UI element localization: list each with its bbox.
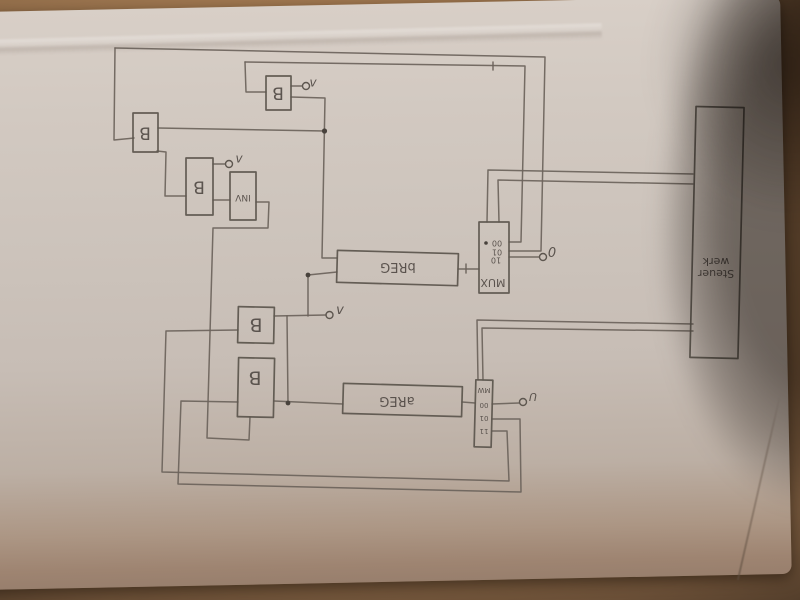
b2-label: B [139, 123, 151, 142]
wire-top-outer [115, 48, 545, 251]
junction-mux-port [484, 241, 488, 245]
terminal-b1 [303, 83, 310, 90]
wire-amux-to-steuerwerk-2 [482, 328, 693, 380]
wire-b5-to-areg [274, 401, 343, 404]
steuerwerk-label-line1: Steuer [698, 267, 734, 279]
amux-row-mw: MW [478, 385, 491, 393]
pencil-drawing [0, 0, 800, 600]
b4-terminal-label: v [336, 304, 344, 318]
wire-b4-branch-down [287, 316, 288, 403]
b3-terminal-label: v [235, 152, 242, 165]
amux-row-11: 11 [480, 426, 489, 434]
wire-b2-out [158, 128, 325, 131]
wire-loop-inner [162, 330, 509, 481]
b1-terminal-label: v [309, 76, 316, 89]
amux-select-label: U [529, 390, 537, 402]
wire-b1-to-breg [291, 97, 337, 258]
steuerwerk-box [690, 106, 744, 358]
terminal-b4 [326, 312, 333, 319]
mux-select-label: 0 [548, 247, 556, 261]
mux-port-10: 10 [491, 255, 501, 264]
b1-label: B [272, 83, 284, 102]
areg-label: aREG [379, 393, 414, 407]
wire-mux-to-steuerwerk-1 [487, 170, 693, 222]
amux-row-00: 00 [480, 400, 489, 408]
mux-label: MUX [480, 276, 505, 288]
wire-b4-out [274, 315, 326, 316]
b5-label: B [248, 367, 261, 388]
breg-label: bREG [380, 259, 416, 273]
steuerwerk-label-line2: werk [698, 255, 734, 267]
wire-mux-to-steuerwerk-2 [498, 180, 693, 222]
inv-label: INV [235, 191, 251, 201]
photo-circuit-sketch: B B B B B INV bREG aREG MUX 00 01 10 MW … [0, 0, 800, 600]
terminal-b3 [226, 161, 233, 168]
wire-loop-outer [178, 401, 521, 492]
terminal-amux [520, 399, 527, 406]
amux-row-01: 01 [480, 413, 489, 421]
wire-rail-to-b2 [114, 48, 134, 140]
wire-amux-select [492, 403, 519, 404]
b4-label: B [249, 314, 262, 335]
junction-b1-b2 [322, 128, 327, 133]
wire-rail-to-b1 [245, 62, 266, 92]
steuerwerk-label: Steuer werk [698, 255, 734, 279]
junction-b5-areg [286, 401, 291, 406]
terminal-mux [540, 254, 547, 261]
mux-port-00: 00 [492, 238, 502, 247]
wire-areg-to-amux [462, 402, 475, 403]
blocks [133, 76, 744, 447]
wire-top-inner [245, 62, 525, 242]
wire-b4-branch-to-breg [308, 272, 337, 316]
junction-b4-breg [306, 273, 311, 278]
wire-b2-to-b3 [157, 151, 186, 196]
b3-label: B [193, 177, 205, 196]
